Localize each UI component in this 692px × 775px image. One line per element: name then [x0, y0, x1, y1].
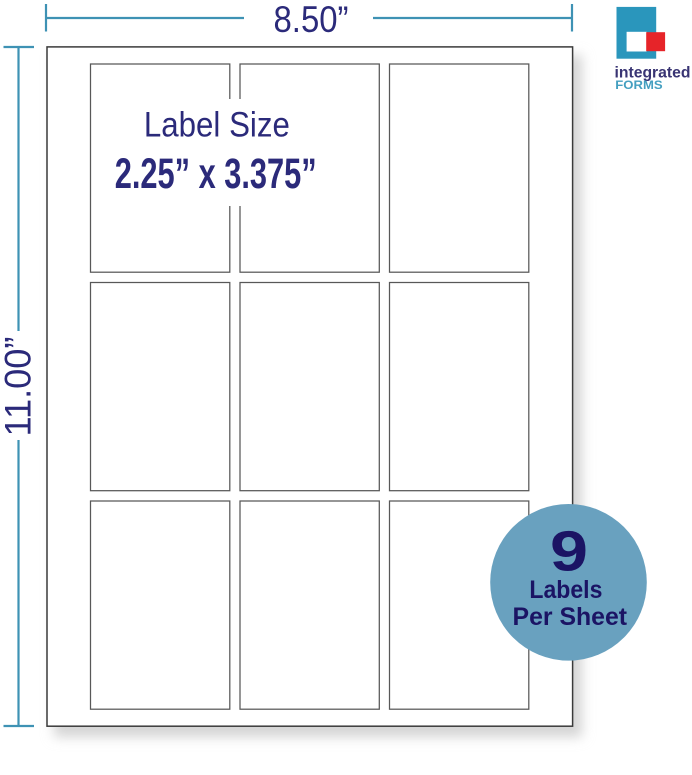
- svg-text:2.25” x 3.375”: 2.25” x 3.375”: [115, 150, 317, 198]
- svg-text:8.50”: 8.50”: [274, 0, 349, 40]
- svg-text:9: 9: [550, 520, 588, 584]
- svg-text:FORMS: FORMS: [615, 78, 662, 92]
- svg-text:Labels: Labels: [529, 576, 602, 604]
- svg-text:Label Size: Label Size: [144, 104, 290, 144]
- svg-text:11.00”: 11.00”: [0, 337, 39, 437]
- svg-text:Per Sheet: Per Sheet: [513, 603, 628, 631]
